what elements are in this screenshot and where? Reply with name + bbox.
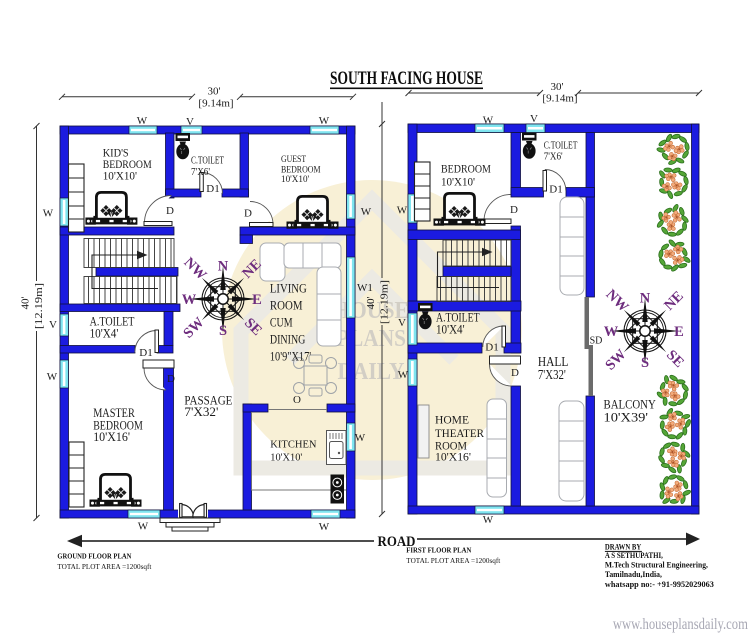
svg-text:[9.14m]: [9.14m] [198, 98, 233, 110]
svg-text:D1: D1 [485, 342, 498, 354]
svg-text:[12.19m]: [12.19m] [33, 283, 45, 329]
svg-text:10'X10': 10'X10' [281, 174, 309, 185]
svg-text:W: W [355, 432, 366, 444]
svg-text:W: W [47, 371, 58, 383]
svg-text:40': 40' [19, 296, 31, 309]
svg-text:10'9"X17': 10'9"X17' [270, 350, 311, 364]
svg-text:O: O [293, 394, 301, 406]
svg-text:GUEST: GUEST [281, 154, 306, 165]
svg-text:7'X6': 7'X6' [191, 166, 210, 178]
svg-text:30': 30' [208, 86, 221, 98]
svg-text:W: W [398, 369, 409, 381]
svg-text:10'X16': 10'X16' [435, 450, 471, 464]
svg-text:D1: D1 [206, 183, 219, 195]
svg-text:SOUTH FACING HOUSE: SOUTH FACING HOUSE [330, 68, 483, 89]
svg-text:C.TOILET: C.TOILET [191, 154, 224, 166]
svg-text:W: W [319, 115, 330, 127]
svg-text:W: W [397, 205, 408, 217]
svg-text:C.TOILET: C.TOILET [544, 141, 578, 152]
svg-text:TOTAL PLOT AREA =1200sqft: TOTAL PLOT AREA =1200sqft [57, 562, 152, 571]
svg-text:W: W [483, 514, 494, 526]
svg-text:CUM: CUM [270, 316, 293, 330]
svg-text:D: D [510, 204, 518, 216]
svg-text:10'X4': 10'X4' [436, 323, 465, 337]
svg-text:[9.14m]: [9.14m] [542, 93, 577, 105]
svg-text:SD: SD [590, 336, 603, 347]
svg-text:V: V [186, 116, 194, 128]
svg-text:W: W [319, 521, 330, 533]
svg-text:7'X32': 7'X32' [184, 404, 218, 419]
svg-text:[12.19m]: [12.19m] [379, 280, 391, 324]
svg-text:40': 40' [365, 296, 377, 309]
svg-text:10'X10': 10'X10' [441, 175, 475, 188]
svg-text:BEDROOM: BEDROOM [441, 163, 491, 176]
svg-text:TOTAL PLOT AREA =1200sqft: TOTAL PLOT AREA =1200sqft [406, 556, 501, 565]
svg-text:A S SETHUPATHI,: A S SETHUPATHI, [605, 550, 663, 560]
svg-text:W: W [137, 115, 148, 127]
svg-text:V: V [49, 319, 57, 331]
svg-text:10'X10': 10'X10' [270, 453, 302, 464]
svg-text:7'X6': 7'X6' [544, 152, 563, 163]
svg-text:V: V [398, 317, 406, 329]
svg-text:D: D [166, 205, 174, 217]
svg-text:W: W [361, 206, 372, 218]
svg-text:7'X32': 7'X32' [538, 367, 566, 382]
svg-text:W: W [43, 208, 54, 220]
svg-text:W: W [138, 521, 149, 533]
svg-text:W1: W1 [357, 282, 373, 294]
svg-text:whatsapp no:- +91-9952029063: whatsapp no:- +91-9952029063 [605, 579, 714, 589]
svg-text:D: D [244, 208, 252, 220]
svg-text:V: V [530, 113, 538, 125]
svg-text:10'X10': 10'X10' [103, 169, 137, 183]
svg-text:10'X4': 10'X4' [90, 326, 119, 341]
svg-text:Tamilnadu,India,: Tamilnadu,India, [605, 569, 662, 579]
svg-text:D: D [511, 367, 519, 379]
svg-text:D1: D1 [549, 184, 562, 196]
svg-text:D1: D1 [139, 347, 152, 359]
svg-text:LIVING: LIVING [270, 282, 307, 296]
svg-text:D: D [167, 373, 175, 385]
svg-text:ROOM: ROOM [270, 299, 303, 313]
svg-text:HOME: HOME [435, 413, 469, 427]
svg-text:10'X16': 10'X16' [93, 429, 130, 444]
svg-text:10'X39': 10'X39' [604, 410, 649, 425]
svg-text:KITCHEN: KITCHEN [270, 440, 317, 451]
svg-text:GROUND FLOOR PLAN: GROUND FLOOR PLAN [57, 552, 132, 561]
svg-text:FIRST FLOOR PLAN: FIRST FLOOR PLAN [406, 546, 472, 555]
svg-text:30': 30' [551, 81, 564, 93]
svg-text:W: W [483, 115, 494, 127]
svg-text:www.houseplansdaily.com: www.houseplansdaily.com [613, 616, 748, 633]
svg-text:DINING: DINING [270, 333, 306, 347]
